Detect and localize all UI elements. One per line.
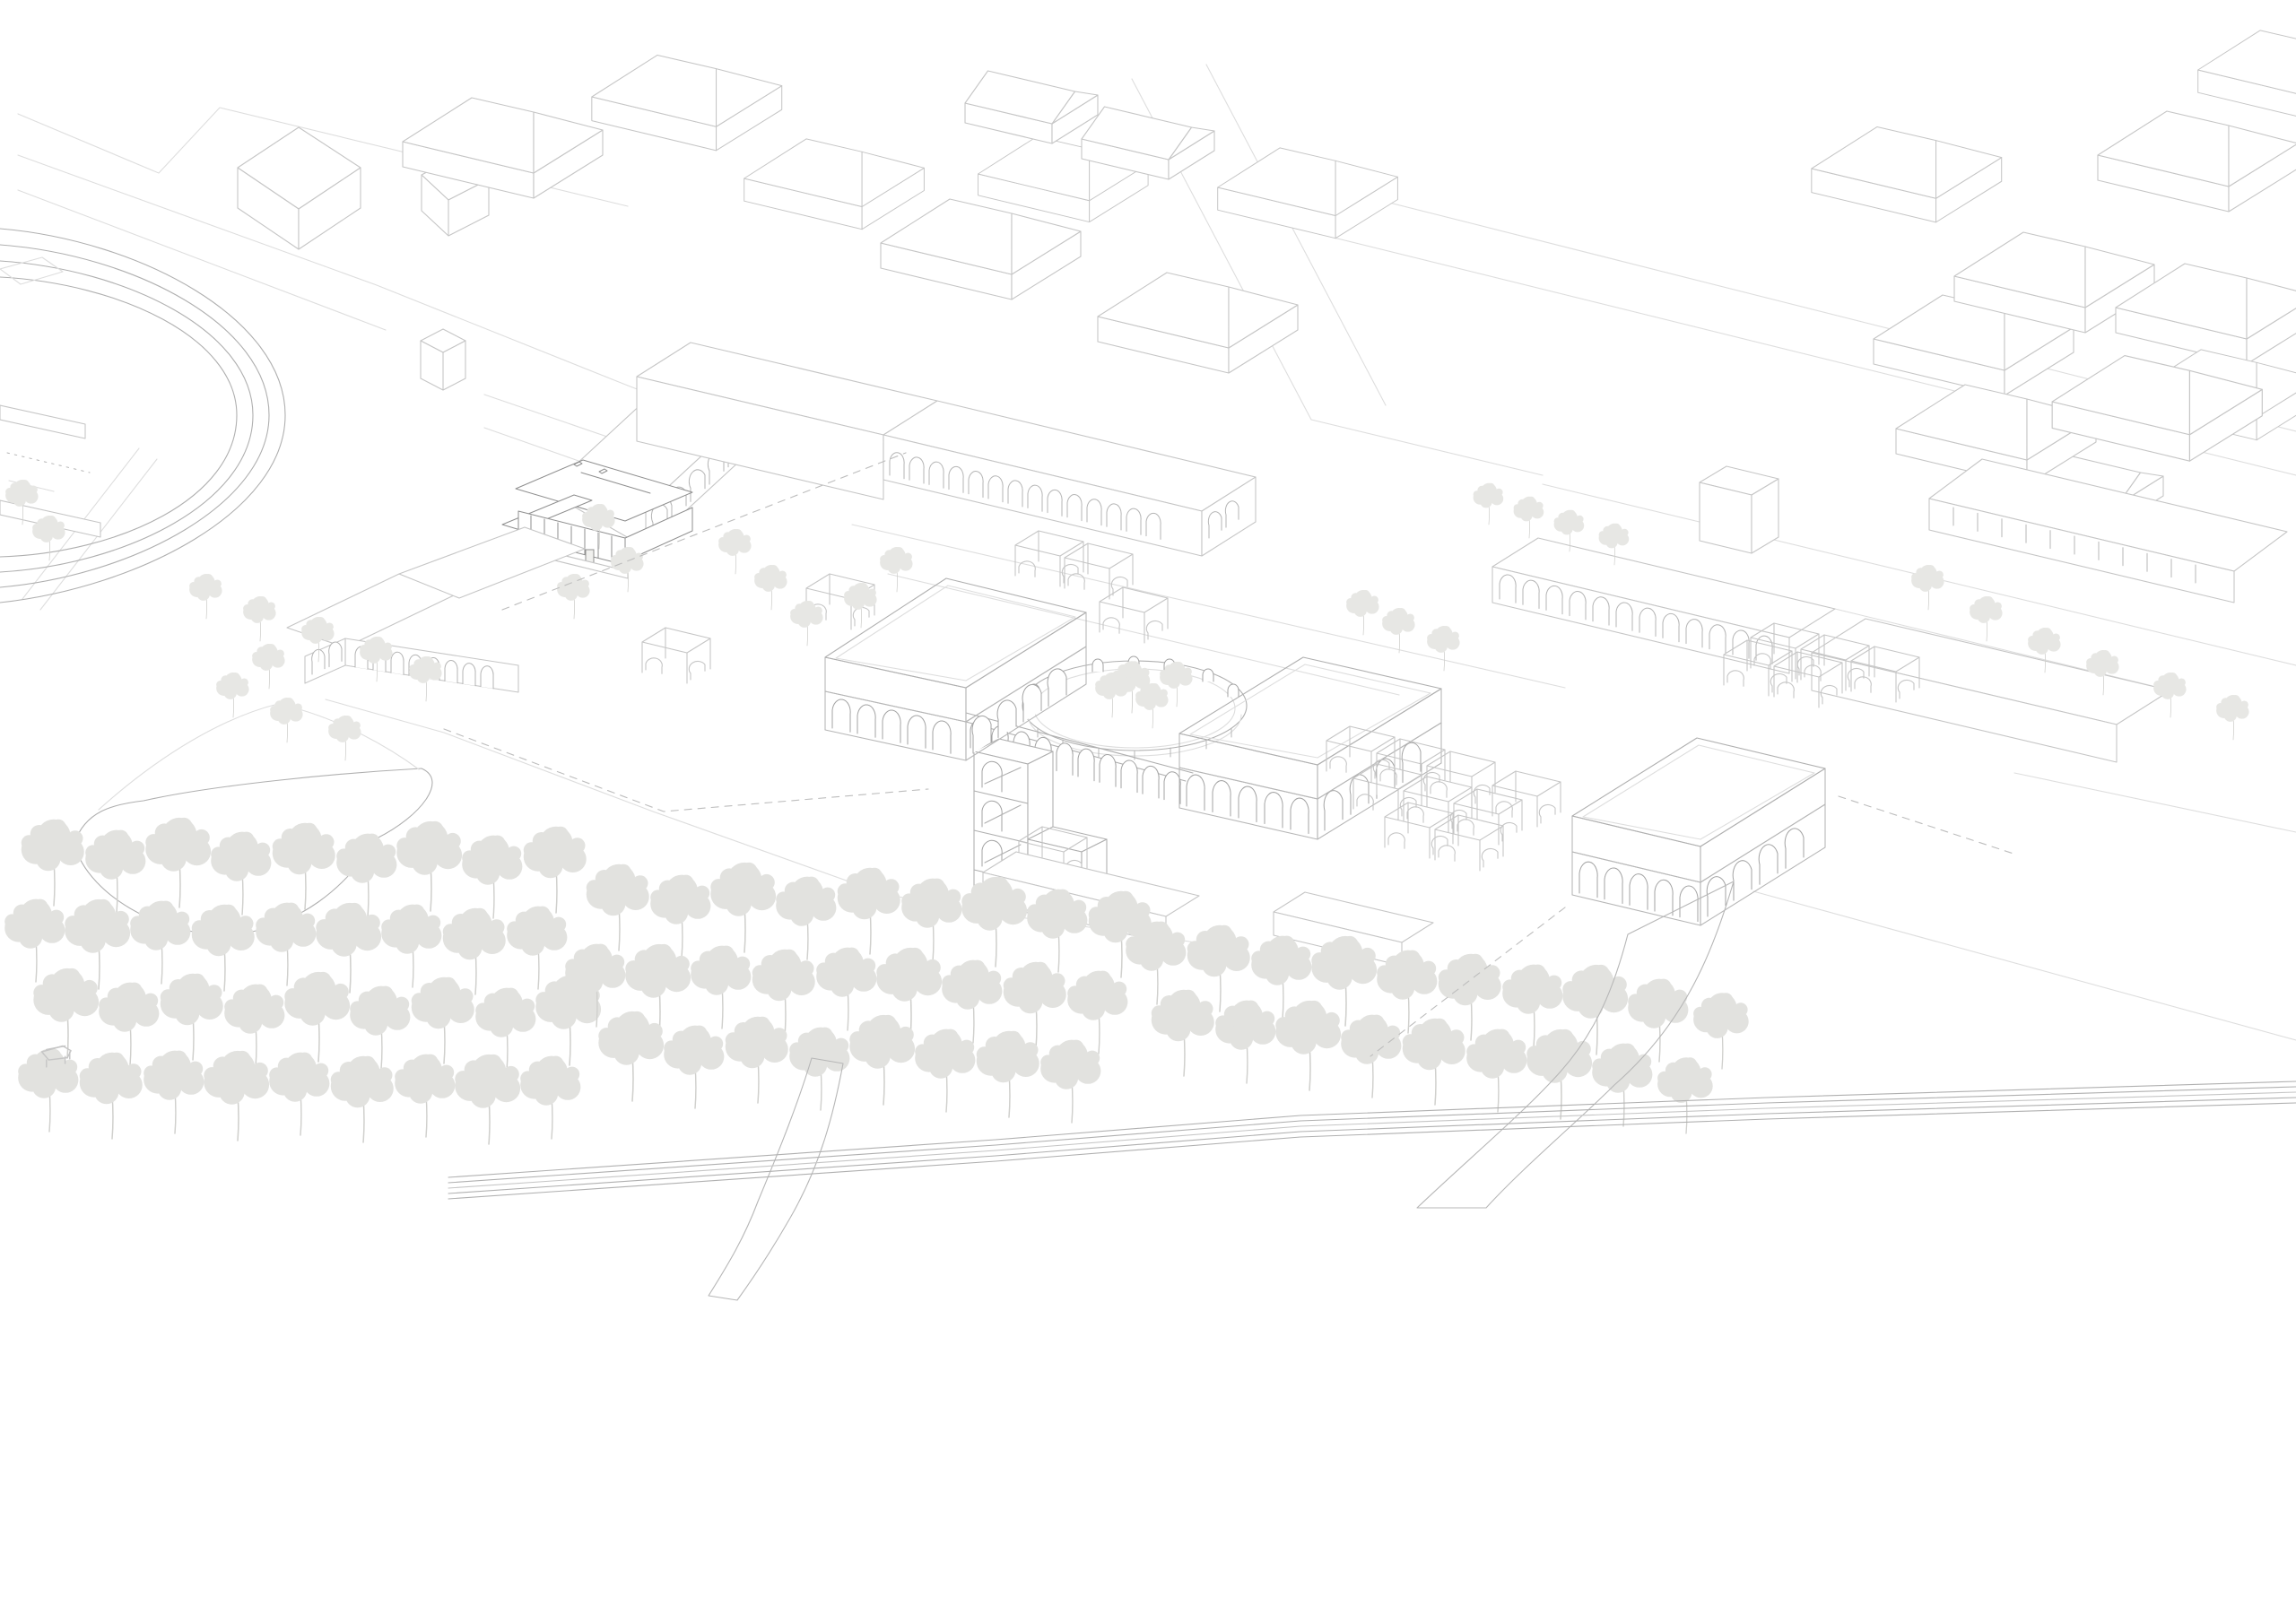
paper-background bbox=[0, 0, 2296, 1623]
site-plan-drawing bbox=[0, 0, 2296, 1623]
axonometric-site-plan bbox=[0, 0, 2296, 1623]
tower-block bbox=[1700, 466, 1779, 553]
